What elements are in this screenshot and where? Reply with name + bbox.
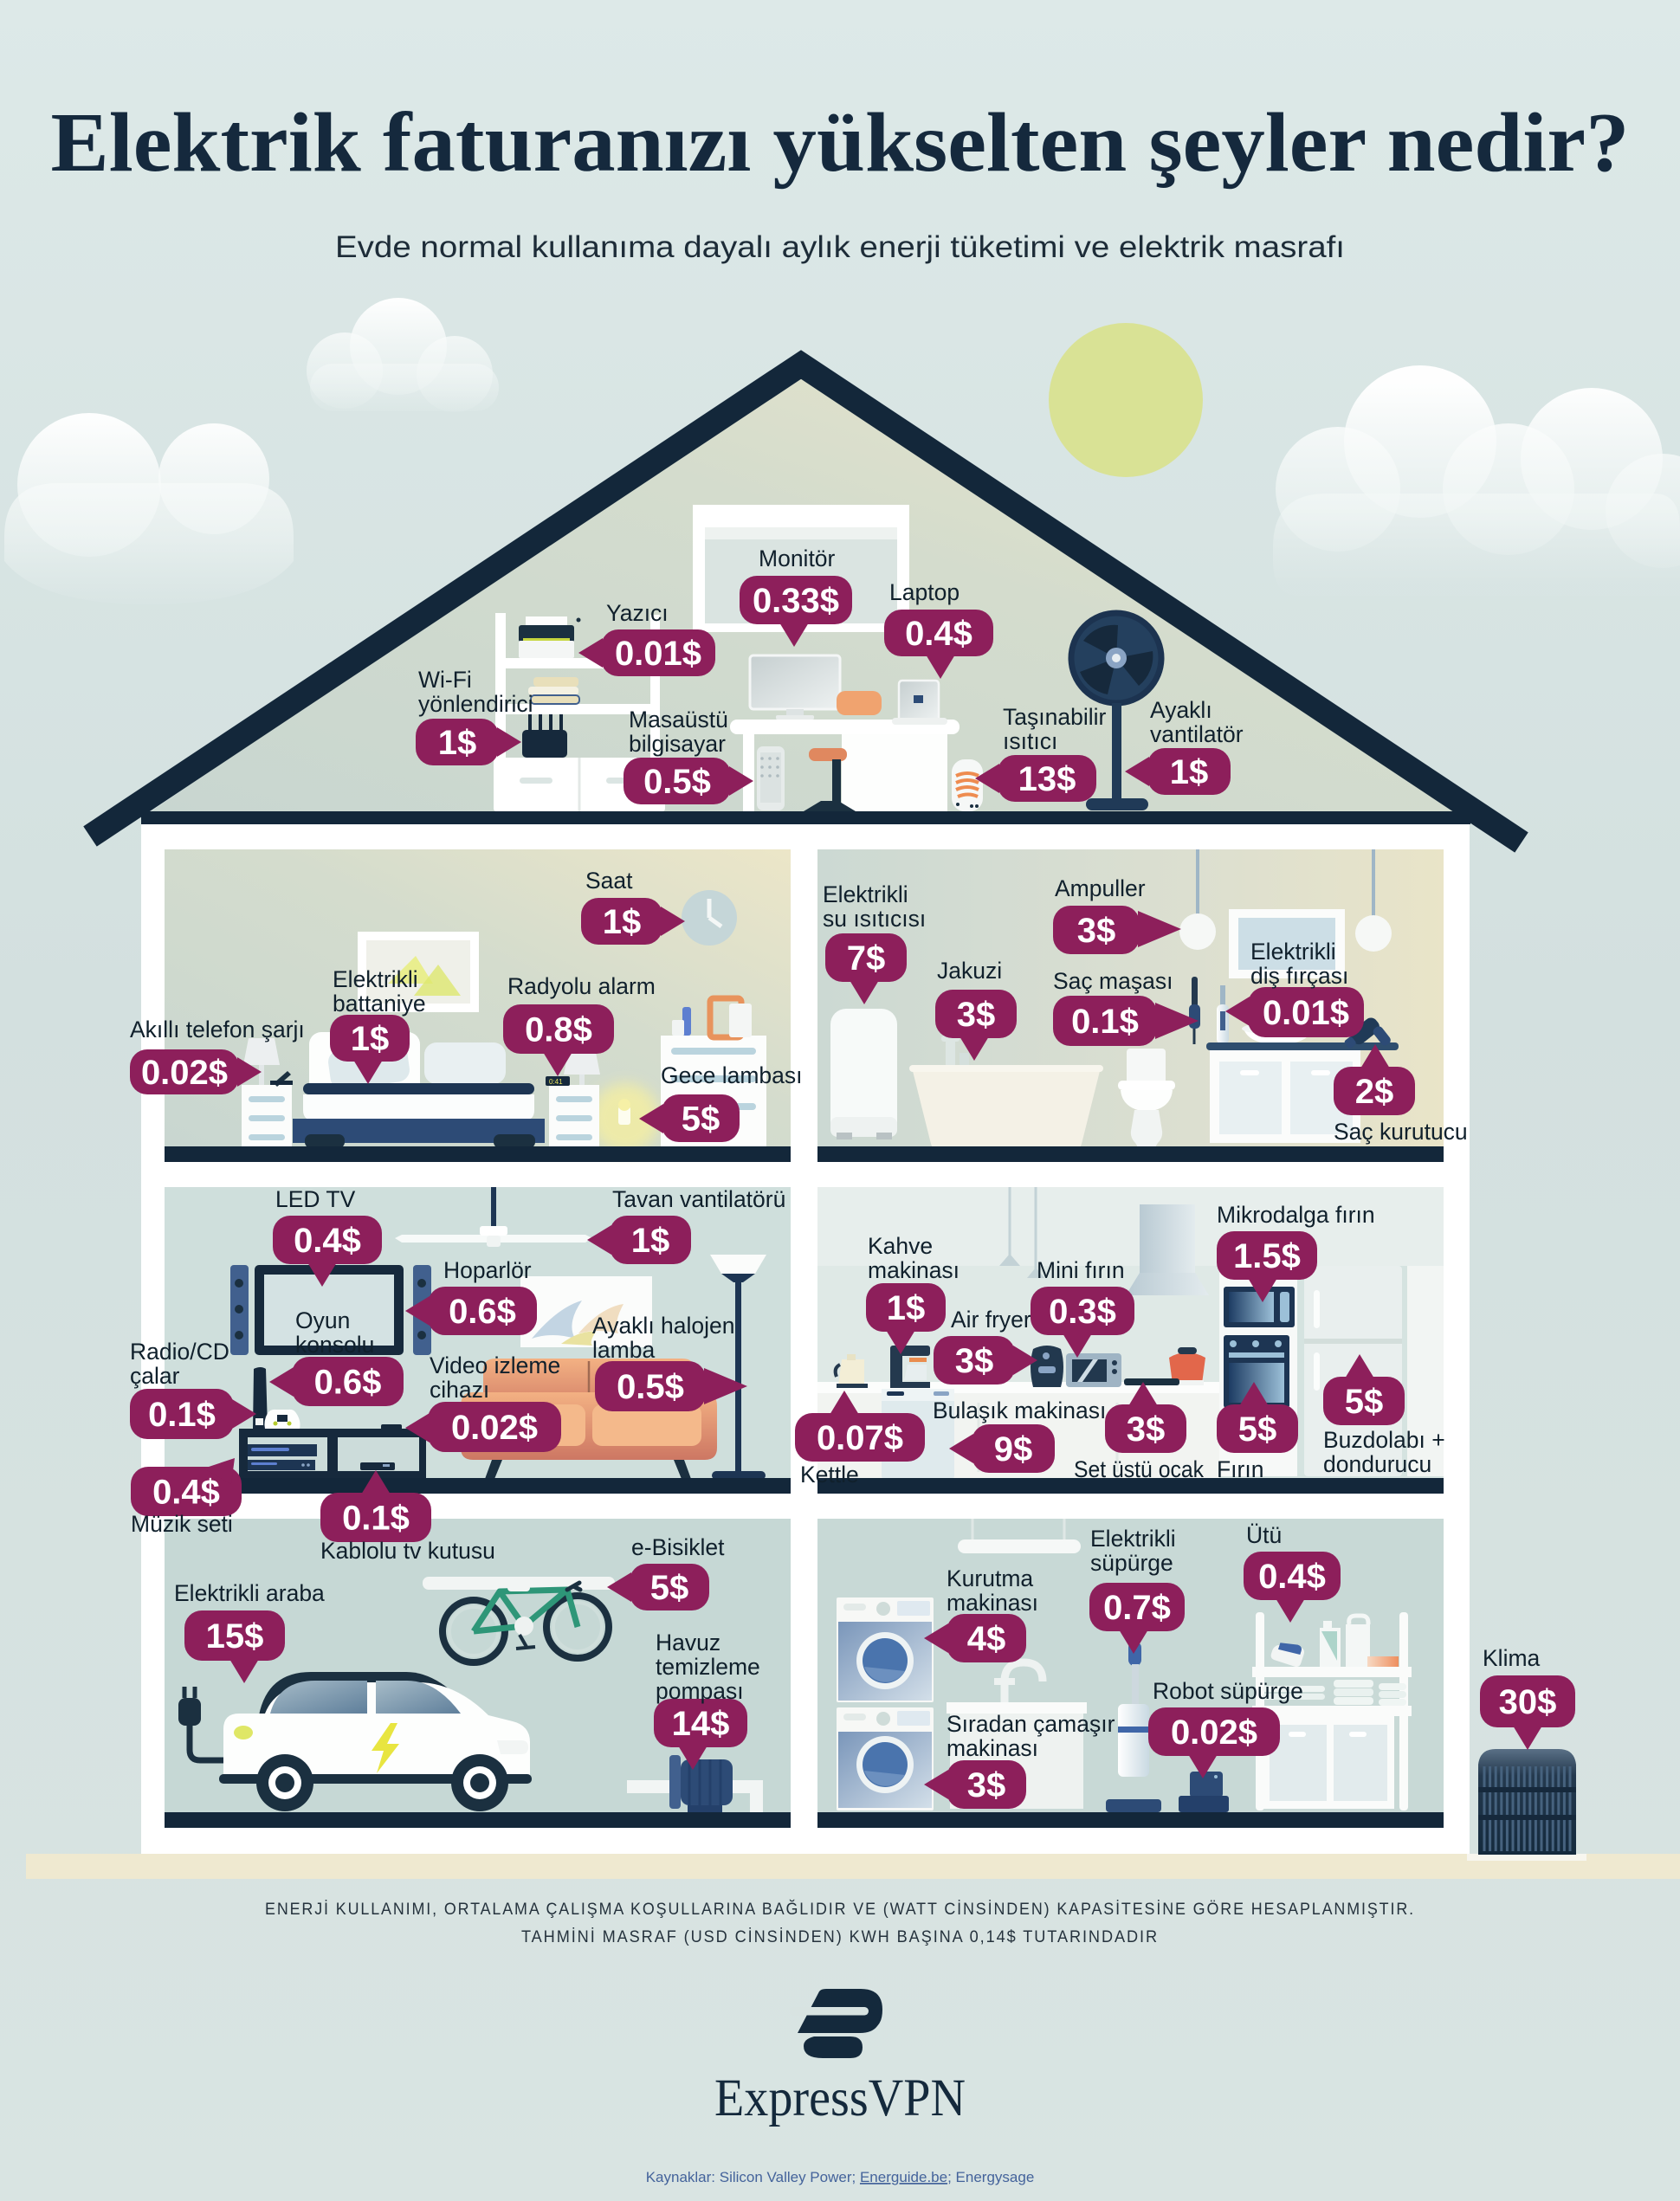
- svg-text:Masaüstü: Masaüstü: [629, 707, 728, 733]
- svg-text:Wi-Fi: Wi-Fi: [418, 667, 472, 693]
- svg-text:Taşınabilir: Taşınabilir: [1003, 704, 1106, 730]
- svg-text:dondurucu: dondurucu: [1323, 1451, 1431, 1477]
- svg-text:Müzik seti: Müzik seti: [131, 1511, 233, 1537]
- svg-text:0.02$: 0.02$: [1171, 1714, 1257, 1752]
- svg-text:0.4$: 0.4$: [152, 1474, 220, 1512]
- svg-text:makinası: makinası: [868, 1257, 960, 1283]
- svg-text:0.33$: 0.33$: [753, 582, 839, 620]
- svg-text:Gece lambası: Gece lambası: [661, 1062, 803, 1088]
- svg-text:3$: 3$: [967, 1766, 1006, 1804]
- svg-text:0:41: 0:41: [549, 1078, 563, 1086]
- svg-text:Elektrikli araba: Elektrikli araba: [174, 1580, 325, 1606]
- svg-text:0.4$: 0.4$: [294, 1222, 361, 1260]
- svg-text:Elektrikli: Elektrikli: [823, 881, 908, 907]
- svg-text:4$: 4$: [967, 1620, 1006, 1658]
- svg-text:Mini fırın: Mini fırın: [1037, 1257, 1125, 1283]
- svg-text:Elektrikli: Elektrikli: [1090, 1526, 1176, 1552]
- svg-text:ENERJİ KULLANIMI, ORTALAMA ÇAL: ENERJİ KULLANIMI, ORTALAMA ÇALIŞMA KOŞUL…: [265, 1900, 1415, 1919]
- svg-text:0.01$: 0.01$: [1263, 994, 1349, 1032]
- svg-text:0.02$: 0.02$: [141, 1054, 228, 1092]
- svg-text:Set üstü ocak: Set üstü ocak: [1074, 1456, 1205, 1482]
- svg-text:Hoparlör: Hoparlör: [443, 1257, 532, 1283]
- svg-text:Ayaklı: Ayaklı: [1150, 697, 1212, 723]
- svg-text:konsolu: konsolu: [295, 1332, 374, 1358]
- svg-text:0.5$: 0.5$: [643, 763, 711, 801]
- svg-text:Monitör: Monitör: [759, 545, 836, 571]
- svg-text:0.01$: 0.01$: [615, 635, 701, 673]
- svg-text:0.5$: 0.5$: [617, 1368, 684, 1406]
- svg-text:battaniye: battaniye: [333, 991, 426, 1017]
- svg-text:0.8$: 0.8$: [525, 1011, 592, 1049]
- svg-text:süpürge: süpürge: [1090, 1550, 1173, 1576]
- svg-text:TAHMİNİ MASRAF (USD CİNSİNDEN): TAHMİNİ MASRAF (USD CİNSİNDEN) KWH BAŞIN…: [521, 1928, 1159, 1946]
- svg-text:çalar: çalar: [130, 1363, 180, 1389]
- svg-text:Elektrik faturanızı yükselten: Elektrik faturanızı yükselten şeyler ned…: [51, 96, 1630, 189]
- svg-text:Buzdolabı +: Buzdolabı +: [1323, 1427, 1445, 1453]
- svg-text:1$: 1$: [603, 903, 642, 941]
- svg-text:0.3$: 0.3$: [1049, 1293, 1116, 1331]
- svg-text:temizleme: temizleme: [656, 1654, 760, 1680]
- svg-text:0.4$: 0.4$: [905, 615, 972, 653]
- svg-text:3$: 3$: [1127, 1410, 1166, 1449]
- svg-text:Ütü: Ütü: [1246, 1522, 1282, 1548]
- svg-text:yönlendirici: yönlendirici: [418, 691, 533, 717]
- svg-text:7$: 7$: [847, 939, 886, 978]
- svg-text:LED TV: LED TV: [275, 1186, 356, 1212]
- svg-text:Kettle: Kettle: [800, 1462, 859, 1488]
- svg-text:Oyun: Oyun: [295, 1307, 350, 1333]
- svg-text:Sıradan çamaşır: Sıradan çamaşır: [947, 1711, 1115, 1737]
- svg-text:pompası: pompası: [656, 1678, 744, 1704]
- svg-text:Saat: Saat: [585, 868, 633, 894]
- svg-text:0.4$: 0.4$: [1258, 1558, 1326, 1596]
- svg-text:Kablolu tv kutusu: Kablolu tv kutusu: [320, 1538, 495, 1564]
- svg-text:Radyolu alarm: Radyolu alarm: [507, 973, 656, 999]
- svg-text:15$: 15$: [206, 1617, 264, 1656]
- svg-text:0.1$: 0.1$: [1071, 1003, 1139, 1041]
- svg-text:1$: 1$: [887, 1289, 926, 1327]
- svg-text:Akıllı telefon şarjı: Akıllı telefon şarjı: [130, 1017, 305, 1042]
- svg-text:Saç maşası: Saç maşası: [1053, 968, 1173, 994]
- svg-text:2$: 2$: [1355, 1073, 1394, 1111]
- svg-text:13$: 13$: [1018, 760, 1076, 798]
- svg-text:0.7$: 0.7$: [1103, 1589, 1171, 1627]
- svg-text:Yazıcı: Yazıcı: [606, 600, 669, 626]
- svg-text:3$: 3$: [955, 1342, 994, 1380]
- svg-text:0.1$: 0.1$: [342, 1500, 410, 1538]
- svg-text:1$: 1$: [438, 724, 477, 762]
- svg-text:su ısıtıcısı: su ısıtıcısı: [823, 906, 926, 932]
- svg-text:Tavan vantilatörü: Tavan vantilatörü: [612, 1186, 785, 1212]
- svg-text:Elektrikli: Elektrikli: [1250, 939, 1336, 965]
- svg-text:14$: 14$: [672, 1705, 730, 1743]
- svg-text:Kurutma: Kurutma: [947, 1565, 1033, 1591]
- svg-text:Evde normal kullanıma dayalı a: Evde normal kullanıma dayalı aylık enerj…: [335, 230, 1345, 264]
- svg-text:Radio/CD: Radio/CD: [130, 1339, 229, 1365]
- svg-text:Elektrikli: Elektrikli: [333, 966, 418, 992]
- svg-text:ExpressVPN: ExpressVPN: [714, 2069, 966, 2127]
- svg-text:Saç kurutucu: Saç kurutucu: [1334, 1119, 1468, 1145]
- svg-text:Laptop: Laptop: [889, 579, 960, 605]
- svg-text:0.6$: 0.6$: [314, 1364, 382, 1402]
- svg-text:Kaynaklar: Silicon Valley Powe: Kaynaklar: Silicon Valley Power; Energui…: [646, 2169, 1035, 2185]
- svg-text:Air fryer: Air fryer: [951, 1307, 1031, 1333]
- svg-text:e-Bisiklet: e-Bisiklet: [631, 1534, 725, 1560]
- svg-text:Klima: Klima: [1483, 1645, 1541, 1671]
- svg-text:Robot süpürge: Robot süpürge: [1153, 1678, 1303, 1704]
- svg-text:ısıtıcı: ısıtıcı: [1003, 728, 1057, 754]
- svg-text:5$: 5$: [1345, 1383, 1384, 1421]
- svg-text:0.02$: 0.02$: [451, 1409, 538, 1447]
- svg-text:vantilatör: vantilatör: [1150, 721, 1244, 747]
- svg-text:makinası: makinası: [947, 1735, 1038, 1761]
- svg-text:30$: 30$: [1499, 1683, 1557, 1721]
- svg-text:Video izleme: Video izleme: [430, 1352, 560, 1378]
- svg-text:Bulaşık makinası: Bulaşık makinası: [933, 1397, 1106, 1423]
- svg-text:makinası: makinası: [947, 1590, 1038, 1616]
- svg-text:9$: 9$: [994, 1430, 1033, 1468]
- svg-text:bilgisayar: bilgisayar: [629, 731, 726, 757]
- svg-text:lamba: lamba: [592, 1337, 655, 1363]
- svg-text:Fırın: Fırın: [1217, 1456, 1263, 1482]
- svg-text:1$: 1$: [351, 1020, 390, 1058]
- svg-text:0.07$: 0.07$: [817, 1419, 903, 1457]
- svg-text:cihazı: cihazı: [430, 1377, 489, 1403]
- svg-text:Jakuzi: Jakuzi: [937, 958, 1002, 984]
- svg-text:Havuz: Havuz: [656, 1630, 720, 1656]
- svg-text:1$: 1$: [631, 1222, 670, 1260]
- svg-text:0.6$: 0.6$: [449, 1293, 516, 1331]
- svg-text:3$: 3$: [1077, 912, 1116, 950]
- svg-text:Mikrodalga fırın: Mikrodalga fırın: [1217, 1202, 1375, 1228]
- svg-text:Kahve: Kahve: [868, 1233, 933, 1259]
- svg-text:Ayaklı halojen: Ayaklı halojen: [592, 1313, 735, 1339]
- svg-text:5$: 5$: [650, 1569, 689, 1607]
- svg-text:1$: 1$: [1170, 753, 1209, 791]
- svg-text:Ampuller: Ampuller: [1055, 875, 1146, 901]
- svg-text:3$: 3$: [957, 996, 996, 1034]
- svg-text:5$: 5$: [1238, 1410, 1277, 1449]
- svg-text:0.1$: 0.1$: [148, 1396, 216, 1434]
- svg-text:diş fırçası: diş fırçası: [1250, 963, 1348, 989]
- svg-text:1.5$: 1.5$: [1233, 1237, 1301, 1275]
- svg-text:5$: 5$: [682, 1100, 720, 1139]
